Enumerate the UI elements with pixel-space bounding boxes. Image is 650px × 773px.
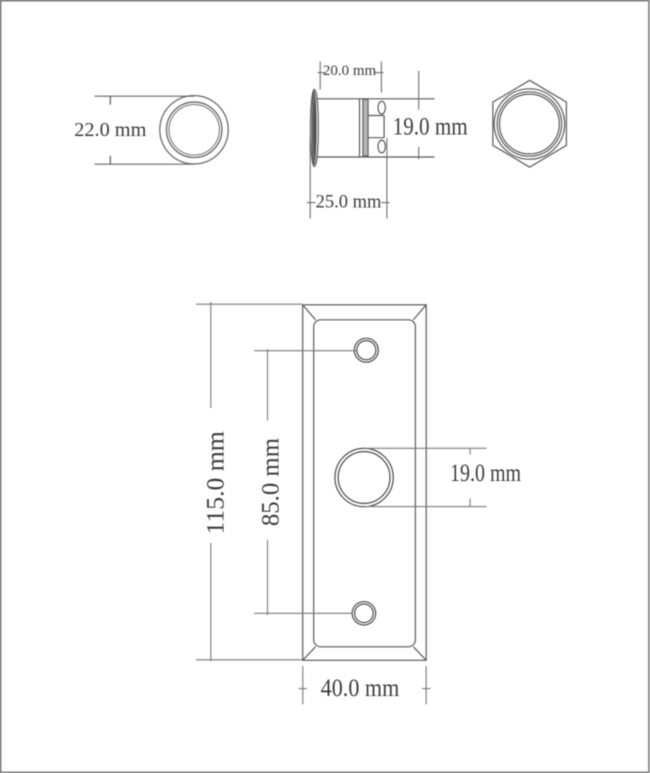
svg-text:22.0 mm: 22.0 mm — [74, 119, 146, 141]
svg-text:25.0 mm: 25.0 mm — [316, 193, 382, 213]
svg-text:19.0 mm: 19.0 mm — [393, 113, 468, 141]
svg-text:85.0 mm: 85.0 mm — [257, 438, 284, 526]
svg-text:19.0 mm: 19.0 mm — [450, 459, 521, 487]
svg-text:40.0 mm: 40.0 mm — [321, 675, 400, 703]
svg-text:115.0 mm: 115.0 mm — [200, 431, 229, 534]
svg-text:20.0 mm: 20.0 mm — [323, 63, 377, 79]
